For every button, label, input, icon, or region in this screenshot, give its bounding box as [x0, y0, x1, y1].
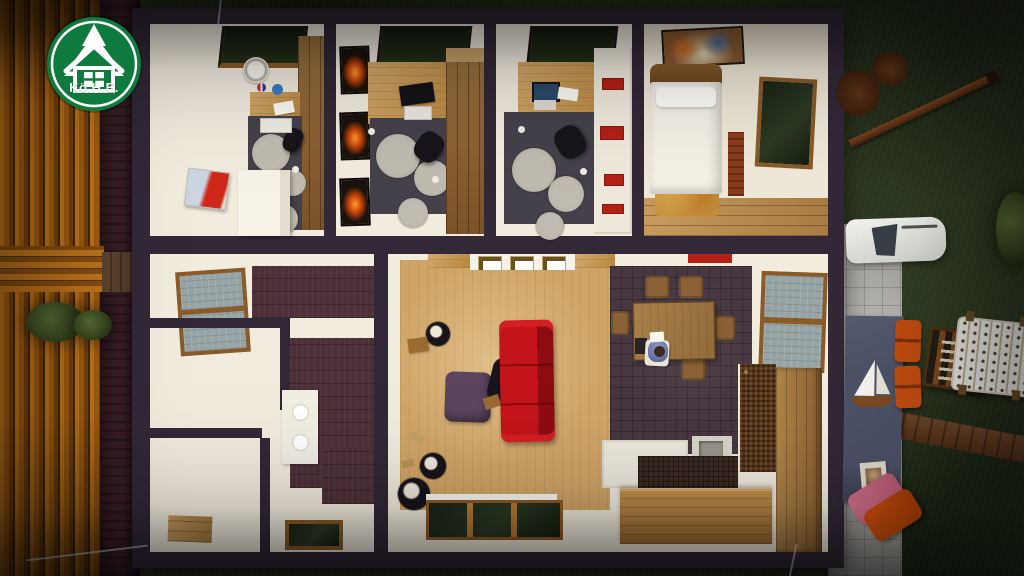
dining-chair — [715, 316, 735, 340]
floor-ball — [518, 126, 525, 133]
stove — [282, 390, 318, 464]
kitchen-mosaic-floor — [638, 456, 738, 492]
dining-window — [758, 271, 827, 373]
table-leg — [958, 384, 967, 395]
floor-lamp — [426, 322, 450, 346]
fire-art-painting — [339, 111, 371, 160]
bedroom-window — [755, 77, 818, 170]
window-mullion — [511, 503, 517, 537]
table-leg — [1012, 390, 1021, 401]
keyboard — [404, 106, 432, 120]
red-wall-decor — [688, 254, 732, 263]
patio-chair — [894, 366, 921, 409]
bathroom-tile-floor — [252, 266, 374, 318]
kohe-logo-graphic — [44, 14, 144, 114]
sailboat-hull — [852, 395, 892, 407]
office-room-2 — [336, 24, 484, 236]
window-mullion — [764, 317, 822, 325]
house-floorplan — [132, 8, 844, 568]
scene-3d-house-render: Kö.H.E. — [0, 0, 1024, 576]
office-room-1 — [150, 24, 324, 236]
picture-frame — [542, 256, 566, 271]
door-mat — [168, 515, 213, 543]
small-window — [285, 520, 343, 550]
hall-tile-floor — [322, 448, 374, 504]
round-rug — [398, 198, 428, 228]
picture-frame — [478, 256, 502, 271]
foosball-table — [950, 316, 1024, 398]
table-leg — [1019, 316, 1024, 327]
grill-handle — [902, 225, 938, 229]
laptop-base — [534, 100, 556, 110]
round-rug — [548, 176, 584, 212]
dry-shrub — [872, 52, 908, 86]
pillow — [656, 87, 716, 107]
window-mullion — [182, 306, 244, 315]
bed — [650, 82, 722, 194]
logo-text: Kö.H.E. — [44, 80, 144, 95]
picture-ledge — [470, 254, 575, 270]
bathroom-window — [175, 268, 251, 357]
dining-chair — [679, 276, 703, 298]
round-rug — [376, 134, 420, 178]
striped-cup — [257, 83, 266, 92]
bedroom — [644, 24, 828, 236]
bush — [74, 310, 112, 340]
side-table — [407, 337, 429, 354]
red-sofa — [499, 320, 555, 443]
bed-headboard — [650, 64, 722, 84]
deck-walkway — [0, 246, 104, 292]
white-wardrobe — [238, 170, 290, 236]
table-leg — [966, 311, 975, 322]
dining-chair — [611, 311, 629, 335]
person-head — [654, 346, 665, 357]
wall-wood-panel — [428, 254, 470, 268]
placemat — [650, 332, 665, 343]
round-rug — [536, 212, 564, 240]
window-mullion — [467, 503, 473, 537]
kitchen-counter — [620, 488, 772, 544]
living-dining-block — [388, 254, 828, 552]
fire-art-painting — [339, 45, 371, 94]
floor-lamp — [420, 453, 446, 479]
wall-art — [661, 26, 745, 68]
printer — [260, 118, 292, 133]
bathroom-kitchen-block — [150, 254, 374, 552]
burner — [292, 434, 309, 451]
floor-window — [426, 500, 563, 540]
fire-art-painting — [339, 177, 371, 226]
round-side-table — [243, 57, 269, 83]
sailboat-sail — [854, 360, 875, 396]
wall-painting — [184, 168, 230, 211]
laptop-screen — [532, 82, 560, 102]
bookshelf — [594, 48, 632, 234]
mosaic-pillar — [738, 364, 776, 472]
kitchen-bar — [776, 368, 822, 552]
blue-cup — [272, 84, 283, 95]
sailboat-sail — [876, 364, 891, 394]
floor-ball — [292, 166, 299, 173]
papers — [557, 87, 578, 102]
patio-chair — [894, 320, 921, 363]
tall-cabinet — [728, 132, 744, 196]
floor-ball — [368, 128, 375, 135]
kohe-logo: Kö.H.E. — [44, 14, 144, 114]
dining-chair — [645, 276, 669, 298]
office-room-3 — [496, 24, 632, 236]
picture-frame — [510, 256, 534, 271]
floor-ball — [432, 176, 439, 183]
grill-opening — [871, 224, 898, 257]
bbq-grill — [845, 216, 946, 263]
dining-chair — [681, 358, 705, 380]
floor-ball — [580, 168, 587, 175]
burner — [292, 404, 309, 421]
wardrobe — [446, 48, 484, 234]
wall-wood-panel — [575, 254, 615, 268]
